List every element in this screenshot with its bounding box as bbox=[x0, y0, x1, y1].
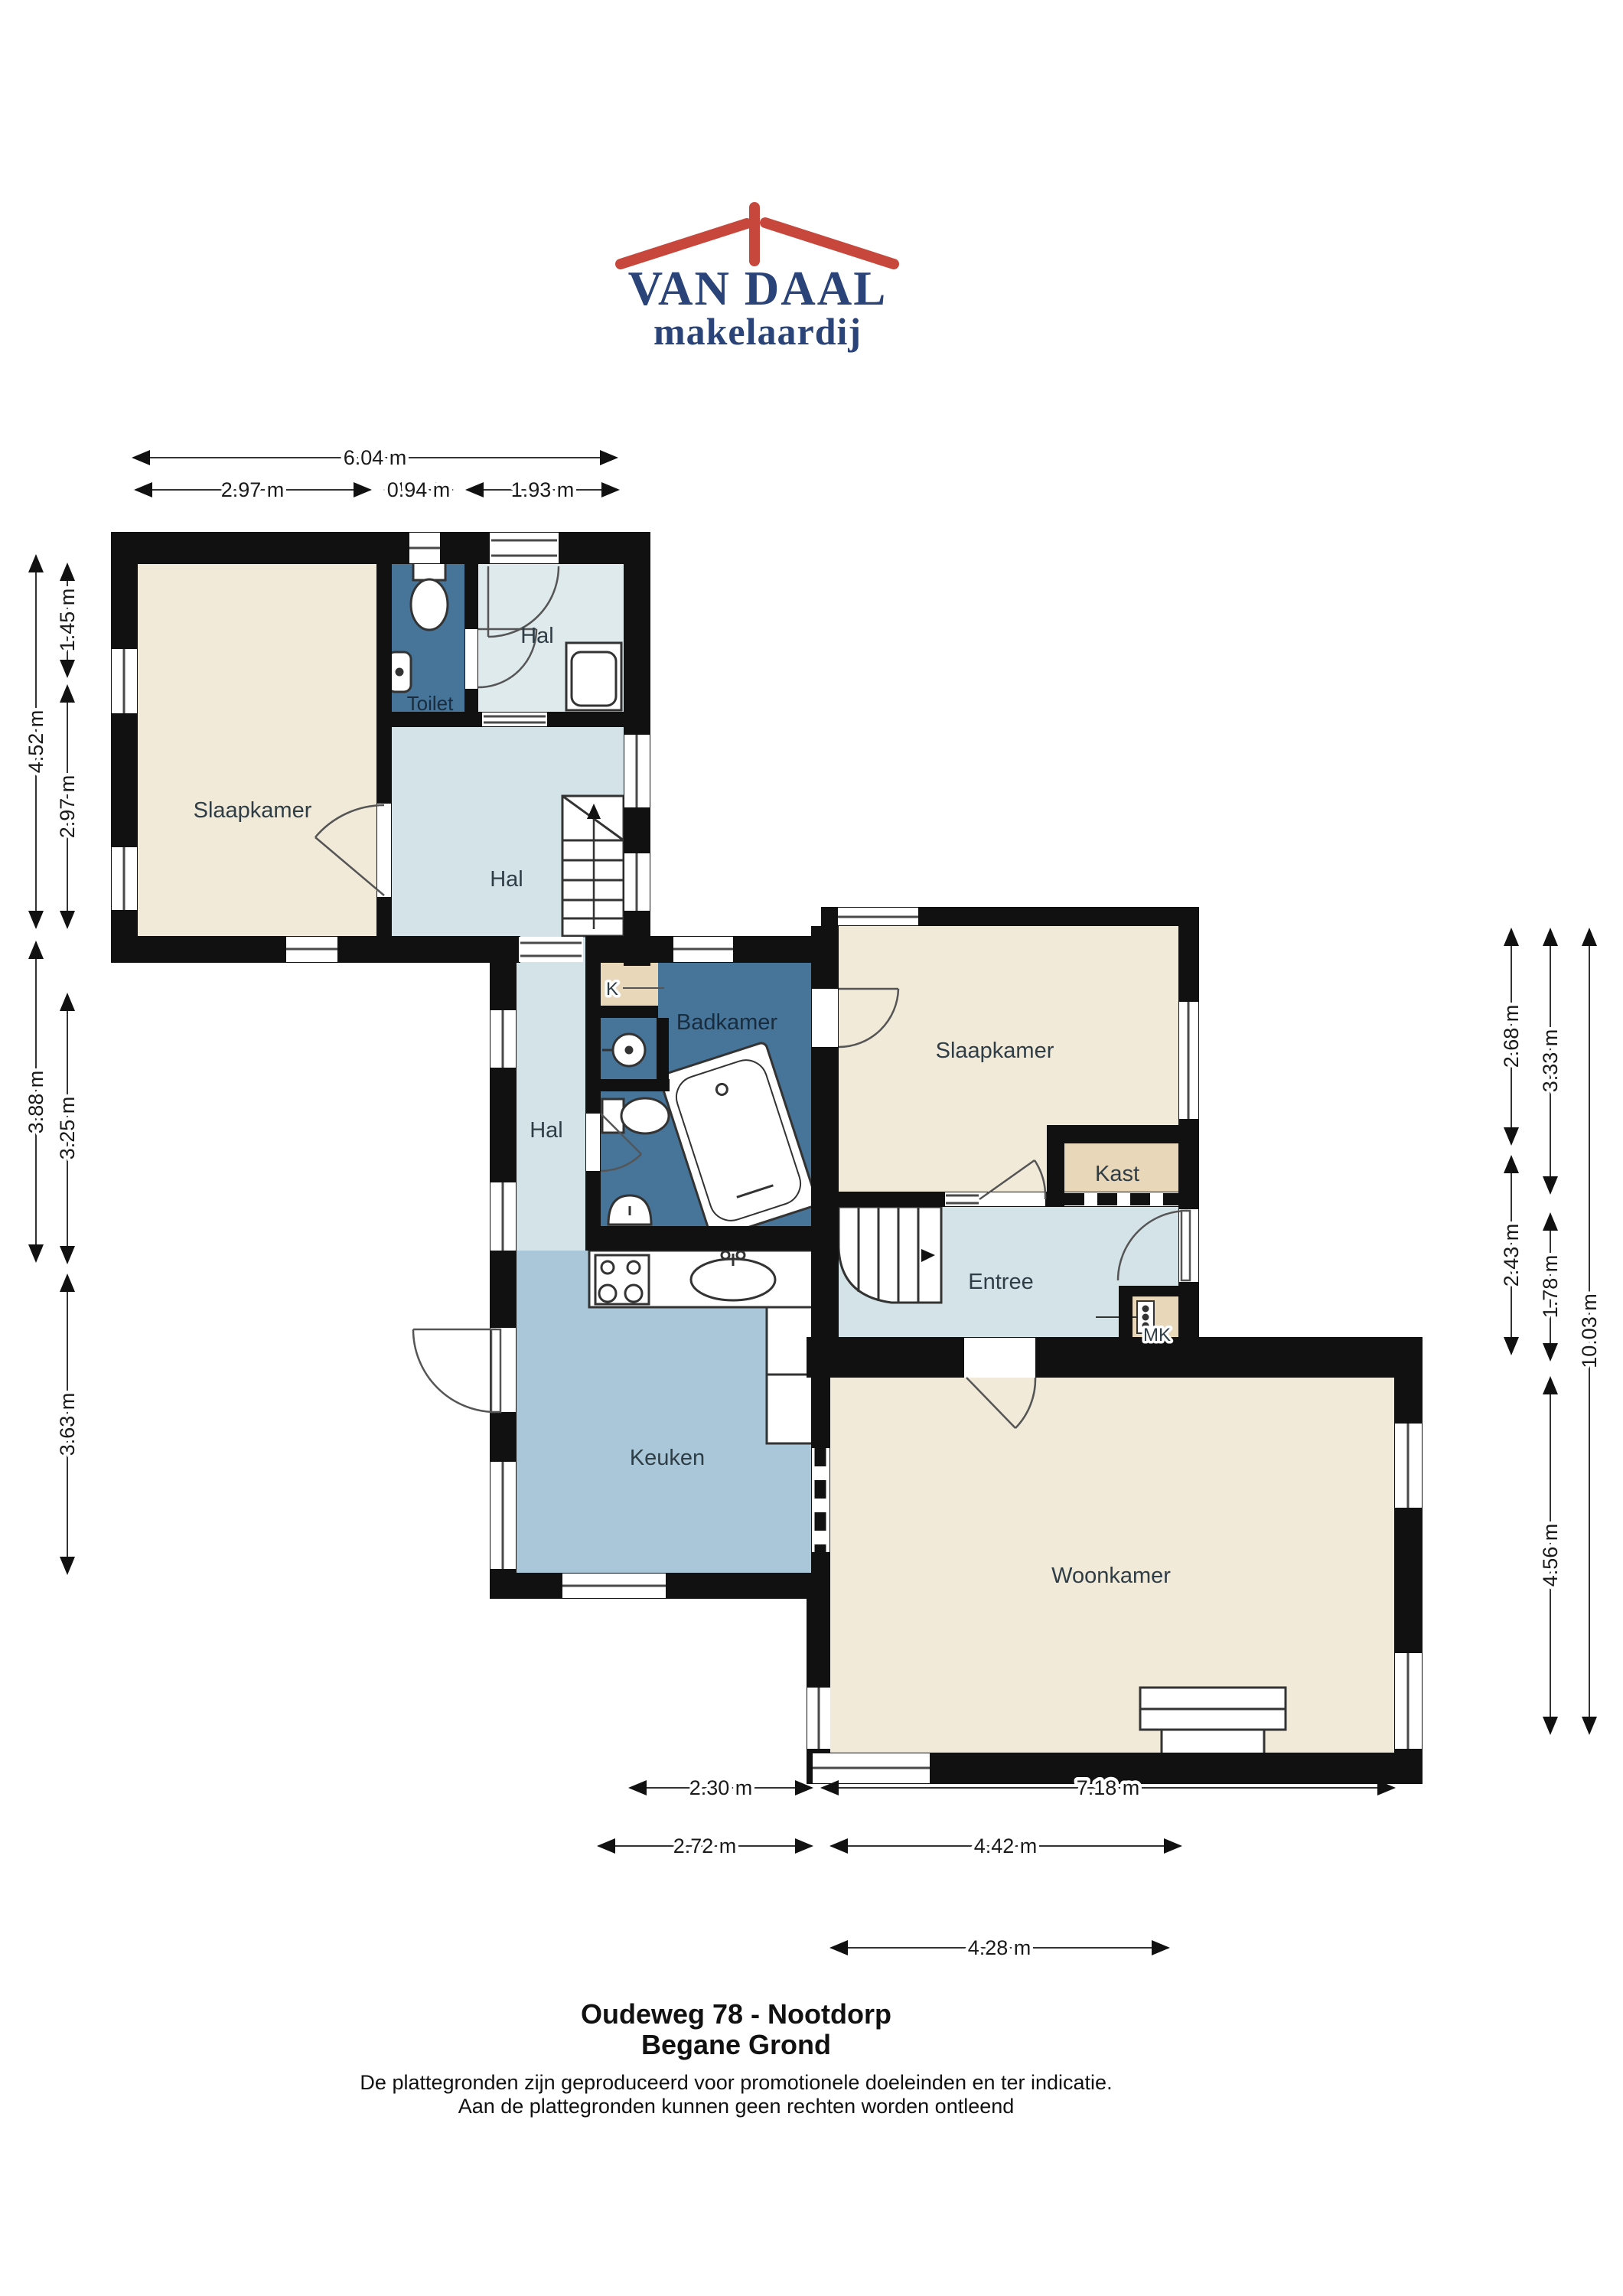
room-label-entree: Entree bbox=[968, 1270, 1033, 1294]
room-label-keuken: Keuken bbox=[630, 1446, 705, 1470]
room-label-mk: MK bbox=[1143, 1325, 1171, 1345]
dimension-label: 7.18 m bbox=[1077, 1776, 1140, 1799]
dimension-label: 2.97 m bbox=[56, 775, 79, 839]
room-label-badkamer: Badkamer bbox=[676, 1010, 778, 1035]
room-label-toilet: Toilet bbox=[407, 692, 454, 715]
address-title: Oudeweg 78 - Nootdorp bbox=[0, 1999, 1472, 2030]
room-label-hal-top: Hal bbox=[520, 624, 554, 648]
dimension-label: 3.25 m bbox=[56, 1097, 79, 1160]
dimension-label: 1.93 m bbox=[511, 478, 575, 501]
dimension-label: 2.43 m bbox=[1500, 1224, 1523, 1287]
room-label-hal-main: Hal bbox=[490, 867, 523, 892]
floor-title: Begane Grond bbox=[0, 2030, 1472, 2060]
sink-icon bbox=[608, 1195, 651, 1225]
room-label-slaapkamer-2: Slaapkamer bbox=[936, 1039, 1054, 1063]
dimension-label: 10.03 m bbox=[1578, 1293, 1601, 1368]
disclaimer-line-2: Aan de plattegronden kunnen geen rechten… bbox=[0, 2095, 1472, 2118]
dimension-label: 2.72 m bbox=[673, 1835, 737, 1857]
room-label-k: K bbox=[606, 979, 618, 1000]
washing-machine-icon bbox=[566, 643, 621, 710]
winder-stairs-icon bbox=[839, 1207, 941, 1303]
cabinet-icon bbox=[767, 1307, 813, 1443]
floorplan-drawing: 6.04 m 2.97 m 0.94 m 1.93 m 4.52 m 3.88 … bbox=[0, 0, 1623, 2296]
disclaimer-line-1: De plattegronden zijn geproduceerd voor … bbox=[0, 2071, 1472, 2095]
stove-icon bbox=[595, 1255, 649, 1304]
dimension-label: 4.42 m bbox=[974, 1835, 1038, 1857]
dimension-label: 1.45 m bbox=[56, 589, 79, 652]
dimension-label: 3.88 m bbox=[24, 1071, 47, 1134]
dimension-label: 2.30 m bbox=[689, 1776, 753, 1799]
toilet-icon bbox=[602, 1098, 669, 1133]
dimension-label: 6.04 m bbox=[344, 446, 407, 469]
kitchen-counter bbox=[589, 1251, 813, 1307]
room-label-slaapkamer-1: Slaapkamer bbox=[194, 798, 312, 823]
floorplan-page: { "logo": { "name": "VAN DAAL", "tagline… bbox=[0, 0, 1623, 2296]
dimension-label: 4.52 m bbox=[24, 710, 47, 774]
dimension-label: 4.56 m bbox=[1539, 1524, 1562, 1587]
dimension-label: 4.28 m bbox=[968, 1936, 1031, 1959]
room-label-woonkamer: Woonkamer bbox=[1051, 1564, 1171, 1588]
dimension-label: 3.33 m bbox=[1539, 1029, 1562, 1093]
dimension-label: 1.78 m bbox=[1539, 1255, 1562, 1319]
footer: Oudeweg 78 - Nootdorp Begane Grond De pl… bbox=[0, 1999, 1472, 2118]
dimension-label: 2.97 m bbox=[221, 478, 285, 501]
dimension-label: 0.94 m bbox=[387, 478, 451, 501]
stairs-icon bbox=[562, 796, 624, 936]
dimension-label: 3.63 m bbox=[56, 1393, 79, 1456]
dimension-label: 2.68 m bbox=[1500, 1005, 1523, 1068]
room-label-kast: Kast bbox=[1095, 1162, 1139, 1186]
room-label-hal-corridor: Hal bbox=[530, 1118, 563, 1143]
